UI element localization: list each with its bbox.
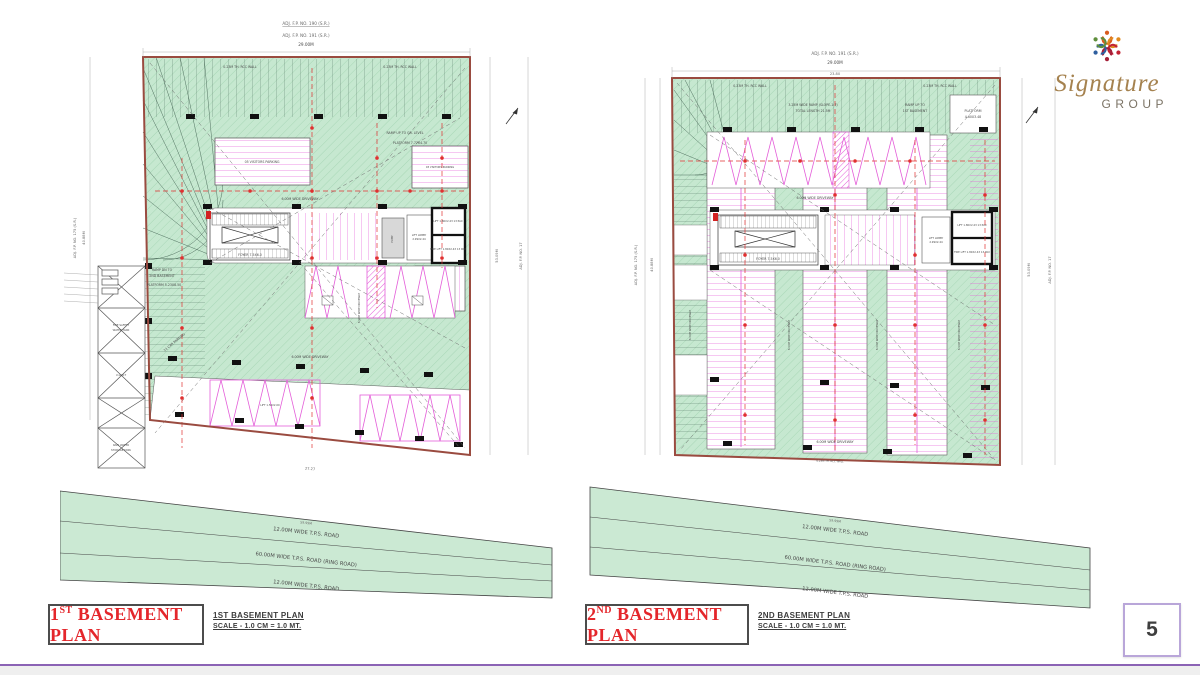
- plan2-adj-top-dim: 29.00M: [827, 60, 843, 65]
- plan1-platform-left-label: PLATFORM 5.23X8.50: [147, 283, 181, 287]
- plan1-title-text: 1ST BASEMENT PLAN: [50, 604, 202, 646]
- logo-group-text: GROUP: [1042, 97, 1172, 111]
- plan1-adj-right-dim: 53.09M: [495, 249, 499, 262]
- plan2-driveway-label-6: 6.00M WIDE DRIVEWAY: [957, 319, 961, 350]
- plan2-driveway-label-5: 6.00M WIDE DRIVEWAY: [875, 319, 879, 350]
- plan1-rain-tank-label-1: RAIN WATER: [113, 443, 129, 447]
- plan2-driveway-label-3: 6.00M WIDE DRIVEWAY: [688, 309, 692, 340]
- plan2-title-text: 2ND BASEMENT PLAN: [587, 604, 747, 646]
- plan1-caption-title: 1ST BASEMENT PLAN: [213, 611, 304, 622]
- plan1-fire-tank-label-1: FIRE SAFETY: [113, 323, 130, 327]
- plan2-ramp-label-2: TOTAL LENGTH 21.5M: [795, 109, 831, 113]
- plan1-caption-scale: SCALE - 1.0 CM = 1.0 MT.: [213, 622, 304, 631]
- plan1-lift-small-label: LIFT 1.50X2.00: [260, 403, 280, 407]
- plan1-fire-tank-label-2: WATER TANK: [113, 328, 130, 332]
- plan1-foyer-label: FOYER 7.5X6.0: [238, 253, 262, 257]
- plan1-adj-right: ADJ. F.P. NO. 17: [519, 242, 523, 269]
- plan1-ramp-dn-label-1: RAMP DN TO: [152, 268, 173, 272]
- plan2-fire-lift-label: FIRE LIFT 1.80X2.43 13 PAX: [954, 250, 990, 254]
- plan1-adj-top: ADJ. F.P. NO. 191 (S.R.): [282, 33, 330, 38]
- signature-group-logo: Signature GROUP: [1042, 28, 1172, 111]
- plan1-driveway-label-3: 6.00M WIDE DRIVEWAY: [357, 292, 361, 323]
- plan2-ramp-up-label-2: 1ST BASEMENT: [903, 109, 928, 113]
- plan2-caption: 2ND BASEMENT PLAN SCALE - 1.0 CM = 1.0 M…: [758, 611, 850, 631]
- plan1-water-tanks: [64, 266, 145, 468]
- plan1-visitors2-label: 03 VISITORS PARKING: [426, 165, 454, 169]
- plan2-zigzag-stalls: [707, 132, 930, 188]
- logo-brand-text: Signature: [1042, 71, 1172, 96]
- plan2-driveway-label-1: 6.00M WIDE DRIVEWAY: [796, 196, 833, 200]
- plan2-lobby-label-2: 2.99X2.44: [929, 240, 943, 244]
- fire-point-icon: [713, 213, 718, 221]
- plan2-ramp-up-label-1: RAMP UP TO: [905, 103, 925, 107]
- plan2-rcc-wall-left: 0.23M TH. RCC WALL: [733, 84, 767, 88]
- plan1-rcc-wall-left: 0.23M TH. RCC WALL: [223, 65, 257, 69]
- plan1-ramp-dn-label-2: 2ND BASEMENT: [149, 274, 174, 278]
- plan2-lobby-label-1: LIFT LOBBY: [929, 236, 944, 240]
- plan2-caption-title: 2ND BASEMENT PLAN: [758, 611, 850, 622]
- plan2-title-box: 2ND BASEMENT PLAN: [585, 604, 749, 645]
- footer-band: [0, 666, 1200, 675]
- plan1-driveway-label-2: 6.00M WIDE DRIVEWAY: [291, 355, 328, 359]
- first-basement-plan-drawing: ADJ. F.P. NO. 190 (S.R.) ADJ. F.P. NO. 1…: [60, 8, 570, 600]
- plan1-rain-tank-label-2: STORAGE TANK: [111, 448, 131, 452]
- plan1-rcc-wall-right: 0.23M TH. RCC WALL: [383, 65, 417, 69]
- plan1-north-arrow-icon: [506, 108, 518, 124]
- plan1-bottom-dim: 27.27: [305, 467, 316, 472]
- plan1-visitors-label: 05 VISITORS PARKING: [245, 160, 280, 164]
- plan1-lift-label: LIFT 1.80X2.43 13 PAX: [433, 219, 463, 223]
- plan2-adj-top: ADJ. F.P. NO. 191 (S.R.): [811, 51, 859, 56]
- logo-people-circle-icon: [1085, 28, 1129, 66]
- plan1-lobby-label-2: 2.99X2.44: [412, 237, 426, 241]
- page-number-box: 5: [1123, 603, 1181, 657]
- plan2-adj-right-dim: 53.09M: [1027, 263, 1031, 276]
- plan1-platform-top-label: PLATFORM 7.77X4.70: [393, 141, 427, 145]
- plan2-ramp-label-1: 3.25M WIDE RAMP (SLOPE-1:7): [788, 103, 837, 107]
- plan1-adj-left: ADJ. F.P. NO. 175 (S.R.): [73, 217, 77, 258]
- plan1-ramp-up-label: RAMP UP TO GR. LEVEL: [386, 131, 423, 135]
- plan2-rcc-wall-right: 0.23M TH. RCC WALL: [923, 84, 957, 88]
- plan2-platform-label-2: 4.60X3.48: [965, 115, 981, 119]
- plan1-caption: 1ST BASEMENT PLAN SCALE - 1.0 CM = 1.0 M…: [213, 611, 304, 631]
- plan2-road-strip: 59.99M 12.00M WIDE T.P.S. ROAD 60.00M WI…: [590, 487, 1090, 608]
- plan1-top-note: ADJ. F.P. NO. 190 (S.R.): [282, 21, 330, 26]
- plan2-adj-left-dim: 40.88M: [650, 258, 654, 271]
- plan1-adj-top-dim: 29.00M: [298, 42, 314, 47]
- second-basement-plan-drawing: ADJ. F.P. NO. 191 (S.R.) 29.00M 23.80 0.…: [585, 25, 1100, 625]
- plan2-platform-label-1: PLATFORM: [965, 109, 982, 113]
- page-number: 5: [1146, 618, 1158, 642]
- plan1-ugwt-label: U.G.W.T: [116, 373, 127, 377]
- plan2-north-arrow-icon: [1026, 107, 1038, 123]
- plan1-driveway-label-1: 6.00M WIDE DRIVEWAY: [281, 197, 318, 201]
- plan1-adj-left-dim: 40.88M: [82, 231, 86, 244]
- plan2-adj-left: ADJ. F.P. NO. 175 (S.R.): [634, 244, 638, 285]
- plan1-title-box: 1ST BASEMENT PLAN: [48, 604, 204, 645]
- plan1-road-strip: 59.99M 12.00M WIDE T.P.S. ROAD 60.00M WI…: [60, 491, 552, 598]
- plan1-lobby-label-1: LIFT LOBBY: [412, 233, 427, 237]
- plan2-adj-right: ADJ. F.P. NO. 17: [1048, 256, 1052, 283]
- plan2-lift-label: LIFT 1.80X2.43 13 PAX: [957, 223, 987, 227]
- fire-point-icon: [206, 211, 211, 219]
- plan2-core-stair: [710, 210, 995, 270]
- plan1-fire-lift-label: FIRE LIFT 1.80X2.43 13 PAX: [430, 247, 466, 251]
- plan2-inner-dim: 23.80: [830, 72, 841, 76]
- plan2-platform-box: [950, 95, 996, 133]
- plan2-driveway-label-4: 6.00M WIDE DRIVEWAY: [787, 319, 791, 350]
- plan2-foyer-label: FOYER 7.5X6.0: [756, 257, 780, 261]
- plan2-caption-scale: SCALE - 1.0 CM = 1.0 MT.: [758, 622, 850, 631]
- plan2-driveway-label-2: 6.00M WIDE DRIVEWAY: [816, 440, 853, 444]
- plan1-pump-label: PUMP: [390, 235, 394, 243]
